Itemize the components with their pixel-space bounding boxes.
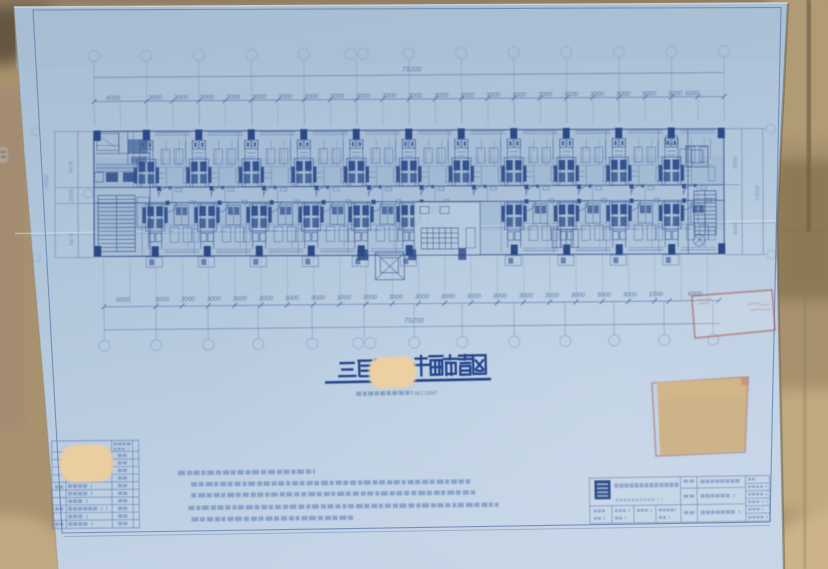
svg-text:3000: 3000	[363, 294, 378, 301]
svg-text:3000: 3000	[441, 293, 456, 300]
svg-text:3000: 3000	[389, 294, 404, 301]
svg-text:3000: 3000	[304, 93, 319, 100]
svg-text:79200: 79200	[402, 66, 422, 73]
svg-text:3000: 3000	[616, 91, 631, 98]
svg-text:5475: 5475	[69, 232, 75, 245]
svg-text:961.05M²: 961.05M²	[414, 391, 438, 397]
svg-text:3000: 3000	[207, 296, 222, 303]
svg-text:3000: 3000	[668, 90, 683, 97]
svg-text:5850: 5850	[733, 156, 739, 169]
svg-text:3000: 3000	[285, 295, 300, 302]
svg-text:15000: 15000	[44, 173, 50, 189]
svg-text:3000: 3000	[486, 92, 501, 99]
svg-text:6000: 6000	[685, 90, 700, 97]
svg-text:3000: 3000	[467, 293, 482, 300]
svg-text:3000: 3000	[590, 91, 605, 98]
svg-text:3000: 3000	[408, 92, 423, 99]
svg-text:3000: 3000	[512, 92, 527, 99]
svg-text:5475: 5475	[69, 160, 75, 173]
svg-text:3000: 3000	[181, 296, 196, 303]
svg-text:3000: 3000	[519, 292, 534, 299]
svg-text:3000: 3000	[330, 93, 345, 100]
svg-text:3000: 3000	[564, 91, 579, 98]
svg-text:3000: 3000	[597, 292, 612, 299]
svg-text:3000: 3000	[174, 94, 189, 101]
svg-text:3000: 3000	[356, 93, 371, 100]
svg-text:3000: 3000	[226, 94, 241, 101]
svg-text:3000: 3000	[642, 91, 657, 98]
svg-text:3000: 3000	[337, 294, 352, 301]
svg-text:3000: 3000	[415, 293, 430, 300]
svg-text:3000: 3000	[493, 293, 508, 300]
svg-text:3000: 3000	[538, 91, 553, 98]
svg-text:3000: 3000	[434, 92, 449, 99]
svg-text:3000: 3000	[545, 292, 560, 299]
svg-text:3000: 3000	[460, 92, 475, 99]
svg-text:3000: 3000	[571, 292, 586, 299]
svg-text:2925: 2925	[69, 188, 75, 202]
svg-text:3000: 3000	[278, 93, 293, 100]
svg-text:3000: 3000	[382, 93, 397, 100]
svg-text:3000: 3000	[155, 296, 170, 303]
svg-text:3000: 3000	[252, 94, 267, 101]
svg-text:15000: 15000	[755, 184, 761, 200]
svg-text:6000: 6000	[116, 297, 131, 304]
svg-text:1500: 1500	[649, 291, 664, 298]
svg-text:3000: 3000	[233, 295, 248, 302]
svg-text:3000: 3000	[259, 295, 274, 302]
svg-text:3000: 3000	[311, 295, 326, 302]
svg-text:3000: 3000	[623, 291, 638, 298]
svg-text:6000: 6000	[106, 95, 121, 102]
svg-text:3000: 3000	[200, 94, 215, 101]
svg-text:5850: 5850	[733, 222, 739, 235]
svg-text:3000: 3000	[148, 94, 163, 101]
